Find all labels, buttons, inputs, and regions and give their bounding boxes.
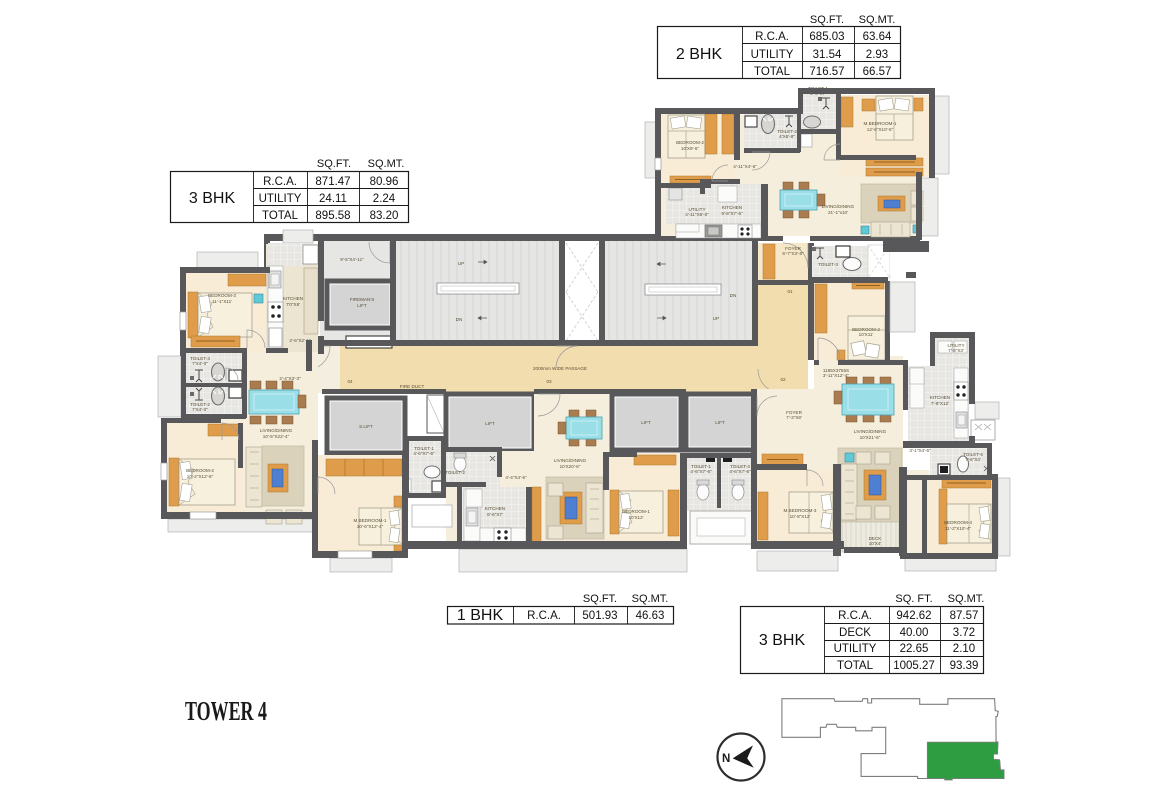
svg-text:KITCHEN: KITCHEN	[722, 205, 742, 210]
svg-text:66.57: 66.57	[863, 66, 892, 78]
svg-text:80.96: 80.96	[370, 176, 399, 188]
svg-text:6'-7"X3'-8": 6'-7"X3'-8"	[782, 251, 804, 256]
svg-text:LIVING/DINING: LIVING/DINING	[260, 428, 293, 433]
svg-text:UTILITY: UTILITY	[259, 193, 302, 205]
svg-text:10'X11': 10'X11'	[859, 332, 874, 337]
svg-text:9'-5"X4'-11": 9'-5"X4'-11"	[340, 257, 364, 262]
svg-text:10'X20'-6": 10'X20'-6"	[560, 464, 581, 469]
svg-text:40.00: 40.00	[900, 627, 929, 639]
svg-text:LIVING/DINING: LIVING/DINING	[822, 204, 855, 209]
svg-text:KITCHEN: KITCHEN	[930, 395, 950, 400]
svg-text:685.03: 685.03	[809, 31, 844, 43]
svg-text:R.C.A.: R.C.A.	[755, 31, 789, 43]
svg-text:4'-11"X6'-0": 4'-11"X6'-0"	[685, 212, 709, 217]
svg-text:4'-11"X4'-6": 4'-11"X4'-6"	[733, 164, 757, 169]
svg-text:87.57: 87.57	[950, 610, 979, 622]
svg-text:10'X4': 10'X4'	[869, 541, 882, 546]
svg-text:N: N	[722, 753, 730, 765]
svg-text:2000mm WIDE PASSAGE: 2000mm WIDE PASSAGE	[533, 366, 587, 371]
svg-text:03: 03	[546, 379, 552, 384]
svg-text:3'-1"X4'-6": 3'-1"X4'-6"	[909, 448, 931, 453]
svg-text:UTILITY: UTILITY	[751, 49, 794, 61]
svg-text:7'0"X8': 7'0"X8'	[286, 302, 300, 307]
svg-text:FIREMAN'S: FIREMAN'S	[350, 297, 375, 302]
svg-text:DN: DN	[456, 317, 463, 322]
svg-text:M.BEDROOM-1: M.BEDROOM-1	[354, 518, 387, 523]
svg-text:3 BHK: 3 BHK	[189, 190, 236, 207]
svg-text:FIRE DUCT: FIRE DUCT	[400, 384, 425, 389]
svg-text:1005.27: 1005.27	[893, 660, 935, 672]
svg-text:3.72: 3.72	[953, 627, 975, 639]
svg-text:4'-4"X4'-6": 4'-4"X4'-6"	[505, 475, 527, 480]
svg-text:7'X4'-0": 7'X4'-0"	[192, 407, 208, 412]
svg-text:BEDROOM-3: BEDROOM-3	[208, 293, 236, 298]
svg-text:11'-1"X11': 11'-1"X11'	[212, 299, 232, 304]
svg-text:10'X21'-6": 10'X21'-6"	[860, 435, 881, 440]
svg-text:4'-6"X7'-6": 4'-6"X7'-6"	[729, 469, 751, 474]
svg-text:LIVING/DINING: LIVING/DINING	[854, 429, 887, 434]
svg-text:LIVING/DINING: LIVING/DINING	[554, 458, 587, 463]
svg-text:BEDROOM-1: BEDROOM-1	[622, 509, 650, 514]
svg-text:1 BHK: 1 BHK	[457, 607, 504, 624]
svg-text:7'-8"X3': 7'-8"X3'	[948, 348, 964, 353]
svg-text:24.11: 24.11	[319, 193, 347, 205]
svg-text:BEDROOM-2: BEDROOM-2	[676, 140, 704, 145]
svg-text:3'-11"X12'-4": 3'-11"X12'-4"	[823, 373, 849, 378]
svg-text:S.LIFT: S.LIFT	[359, 424, 373, 429]
svg-text:83.20: 83.20	[370, 210, 399, 222]
svg-text:KITCHEN: KITCHEN	[485, 506, 505, 511]
svg-text:10'X9'-6": 10'X9'-6"	[681, 146, 700, 151]
svg-text:2 BHK: 2 BHK	[676, 46, 723, 63]
svg-text:TOILET-2: TOILET-2	[445, 470, 465, 475]
svg-text:BEDROOM-4: BEDROOM-4	[944, 520, 972, 525]
svg-text:01: 01	[787, 289, 793, 294]
svg-text:10'X12': 10'X12'	[628, 515, 643, 520]
svg-text:3 BHK: 3 BHK	[759, 632, 806, 649]
svg-text:02: 02	[780, 377, 786, 382]
svg-text:93.39: 93.39	[950, 660, 979, 672]
svg-text:R.C.A.: R.C.A.	[838, 610, 872, 622]
svg-text:7'-3"X8': 7'-3"X8'	[786, 415, 802, 420]
svg-text:12'-6"X10'-5": 12'-6"X10'-5"	[867, 127, 894, 132]
svg-text:7'-8"X12': 7'-8"X12'	[931, 401, 949, 406]
svg-text:SQ.MT.: SQ.MT.	[368, 158, 405, 170]
svg-text:R.C.A.: R.C.A.	[263, 176, 297, 188]
svg-text:871.47: 871.47	[315, 176, 350, 188]
svg-text:M.BEDROOM-1: M.BEDROOM-1	[864, 121, 897, 126]
svg-text:10'-8"X12': 10'-8"X12'	[790, 514, 811, 519]
svg-text:SQ.FT.: SQ.FT.	[810, 14, 844, 26]
svg-text:2'-4"X3'-3": 2'-4"X3'-3"	[279, 376, 301, 381]
svg-text:7'-6"X4': 7'-6"X4'	[965, 457, 981, 462]
svg-text:10'-2"X12'-6": 10'-2"X12'-6"	[187, 474, 214, 479]
svg-text:SQ.FT.: SQ.FT.	[317, 158, 351, 170]
svg-text:SQ.MT.: SQ.MT.	[632, 593, 669, 605]
svg-text:SQ. FT.: SQ. FT.	[895, 593, 932, 605]
svg-text:2.10: 2.10	[953, 643, 975, 655]
svg-text:R.C.A.: R.C.A.	[527, 610, 561, 622]
svg-text:22.65: 22.65	[900, 643, 929, 655]
svg-text:DN: DN	[730, 293, 737, 298]
svg-text:TOTAL: TOTAL	[837, 660, 874, 672]
svg-text:2.93: 2.93	[866, 49, 888, 61]
svg-text:21'-1"x10': 21'-1"x10'	[828, 210, 848, 215]
svg-text:942.62: 942.62	[896, 610, 931, 622]
svg-text:11'-2"X10'-4": 11'-2"X10'-4"	[945, 526, 971, 531]
svg-text:TOILET-3: TOILET-3	[818, 262, 838, 267]
svg-text:TOWER 4: TOWER 4	[185, 696, 267, 726]
svg-text:SQ.MT.: SQ.MT.	[948, 593, 985, 605]
svg-text:M.BEDROOM-3: M.BEDROOM-3	[784, 508, 817, 513]
svg-text:8'-6"X7': 8'-6"X7'	[487, 512, 503, 517]
svg-text:716.57: 716.57	[809, 66, 844, 78]
svg-text:KITCHEN: KITCHEN	[283, 296, 303, 301]
svg-text:TOTAL: TOTAL	[262, 210, 299, 222]
svg-text:TOTAL: TOTAL	[754, 66, 791, 78]
svg-text:UTILITY: UTILITY	[834, 643, 877, 655]
svg-text:LIFT: LIFT	[641, 420, 651, 425]
svg-text:BEDROOM-2: BEDROOM-2	[186, 468, 214, 473]
svg-text:DECK: DECK	[839, 627, 871, 639]
svg-text:10'-5"X22'-4": 10'-5"X22'-4"	[263, 434, 290, 439]
svg-text:4'-6"X7'-6": 4'-6"X7'-6"	[690, 469, 712, 474]
svg-text:7'X4'-0": 7'X4'-0"	[192, 361, 208, 366]
svg-text:9'-8"X7'-6": 9'-8"X7'-6"	[721, 211, 743, 216]
svg-text:04: 04	[347, 379, 353, 384]
svg-text:31.54: 31.54	[813, 49, 842, 61]
svg-text:LIFT: LIFT	[485, 421, 495, 426]
svg-text:501.93: 501.93	[582, 610, 617, 622]
svg-text:895.58: 895.58	[315, 210, 350, 222]
svg-text:SQ.FT.: SQ.FT.	[583, 593, 617, 605]
svg-text:63.64: 63.64	[863, 31, 892, 43]
svg-text:UP: UP	[458, 261, 464, 266]
svg-text:10'-6"X12'-4": 10'-6"X12'-4"	[357, 524, 384, 529]
svg-text:SQ.MT.: SQ.MT.	[859, 14, 896, 26]
svg-text:2.24: 2.24	[373, 193, 396, 205]
svg-text:46.63: 46.63	[636, 610, 665, 622]
svg-text:LIFT: LIFT	[715, 420, 725, 425]
svg-text:LIFT: LIFT	[357, 303, 367, 308]
svg-text:4'X6'-8": 4'X6'-8"	[779, 134, 795, 139]
svg-text:4'-6"X7'-6": 4'-6"X7'-6"	[413, 451, 435, 456]
svg-text:UP: UP	[713, 316, 719, 321]
